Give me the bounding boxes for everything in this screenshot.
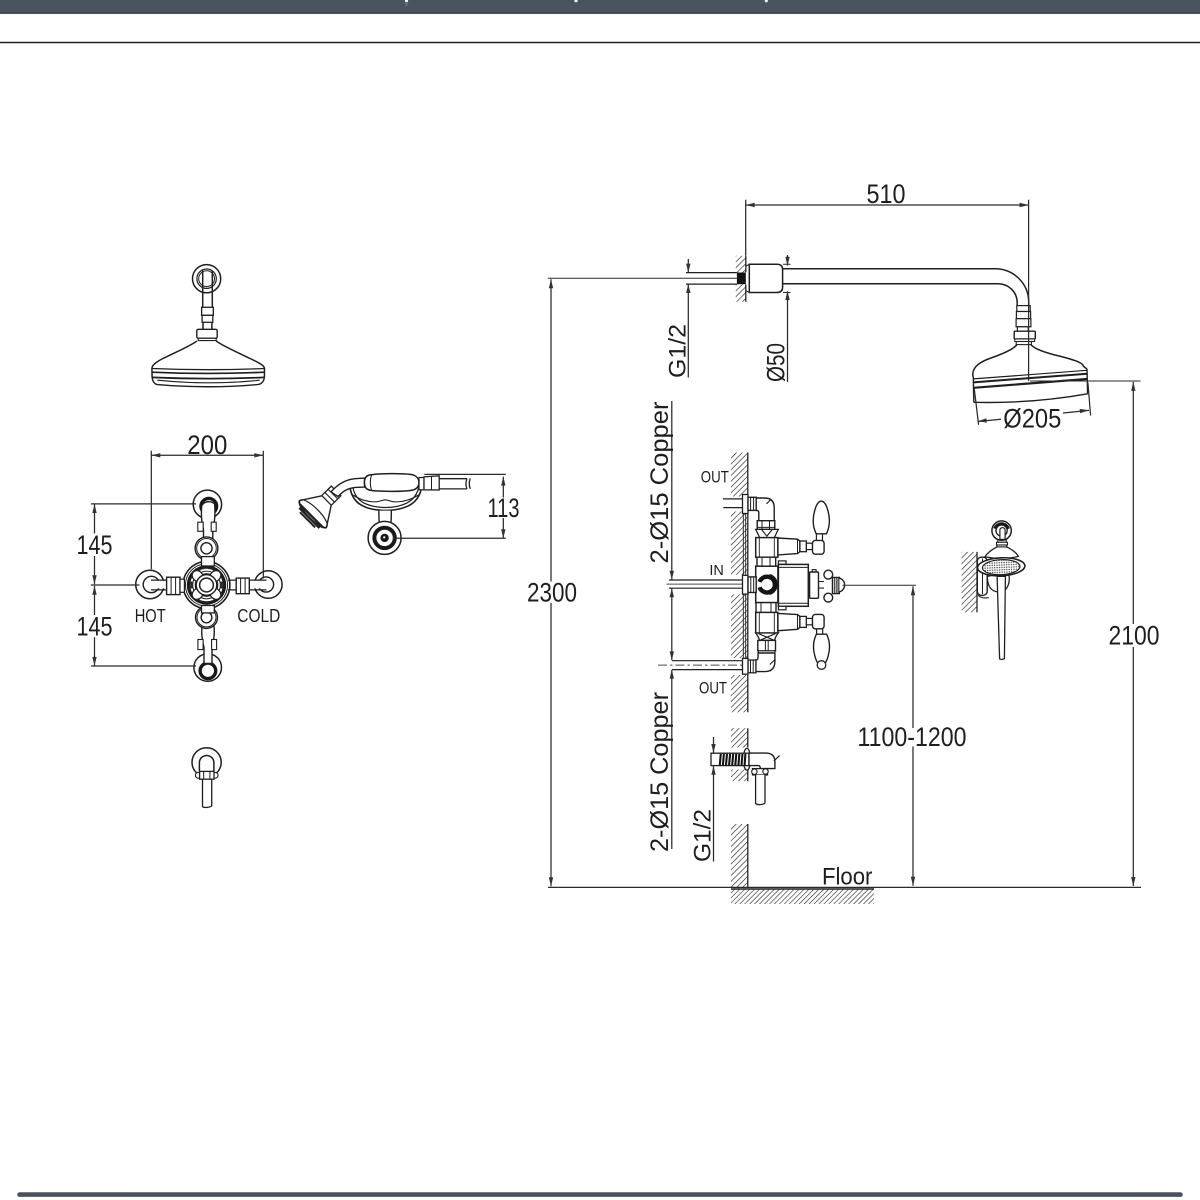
svg-text:145: 145 <box>77 612 113 642</box>
svg-text:510: 510 <box>867 179 906 209</box>
svg-text:Ø205: Ø205 <box>1003 404 1061 434</box>
svg-text:Ø50: Ø50 <box>763 343 791 382</box>
svg-text:COLD: COLD <box>237 605 280 626</box>
svg-text:IN: IN <box>709 562 724 579</box>
svg-text:G1/2: G1/2 <box>665 324 692 378</box>
svg-text:OUT: OUT <box>699 679 727 698</box>
svg-text:145: 145 <box>77 530 113 560</box>
svg-text:2100: 2100 <box>1109 621 1160 651</box>
svg-text:2-Ø15 Copper: 2-Ø15 Copper <box>646 402 674 564</box>
svg-text:2-Ø15 Copper: 2-Ø15 Copper <box>646 692 674 852</box>
svg-text:1100-1200: 1100-1200 <box>858 722 967 752</box>
svg-text:HOT: HOT <box>135 605 166 626</box>
svg-text:2300: 2300 <box>527 578 577 608</box>
svg-text:G1/2: G1/2 <box>690 809 717 862</box>
svg-text:113: 113 <box>488 493 520 523</box>
svg-text:200: 200 <box>187 430 227 460</box>
svg-text:Floor: Floor <box>822 864 873 891</box>
svg-text:OUT: OUT <box>701 468 729 487</box>
